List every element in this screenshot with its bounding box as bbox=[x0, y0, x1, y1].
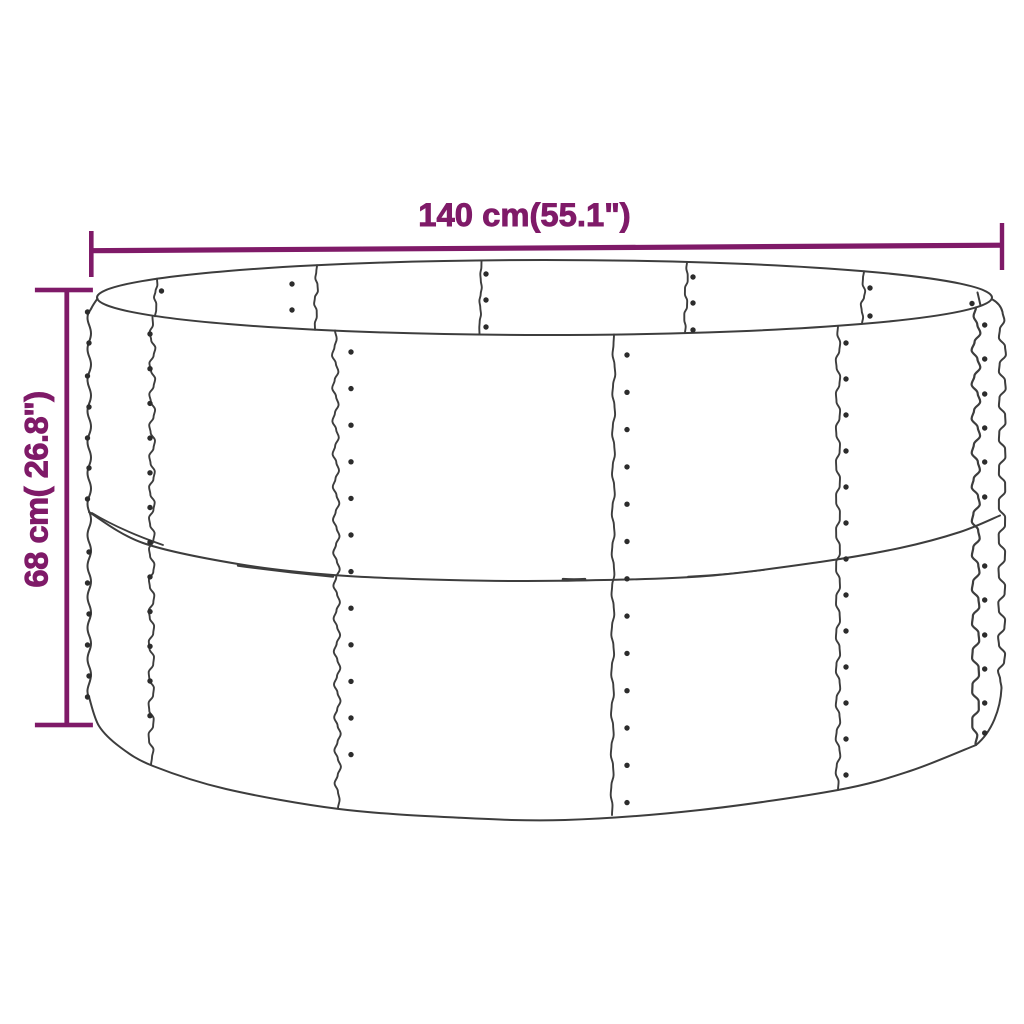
svg-text:68 cm( 26.8"): 68 cm( 26.8") bbox=[17, 391, 54, 587]
svg-text:140 cm(55.1"): 140 cm(55.1") bbox=[418, 196, 630, 233]
